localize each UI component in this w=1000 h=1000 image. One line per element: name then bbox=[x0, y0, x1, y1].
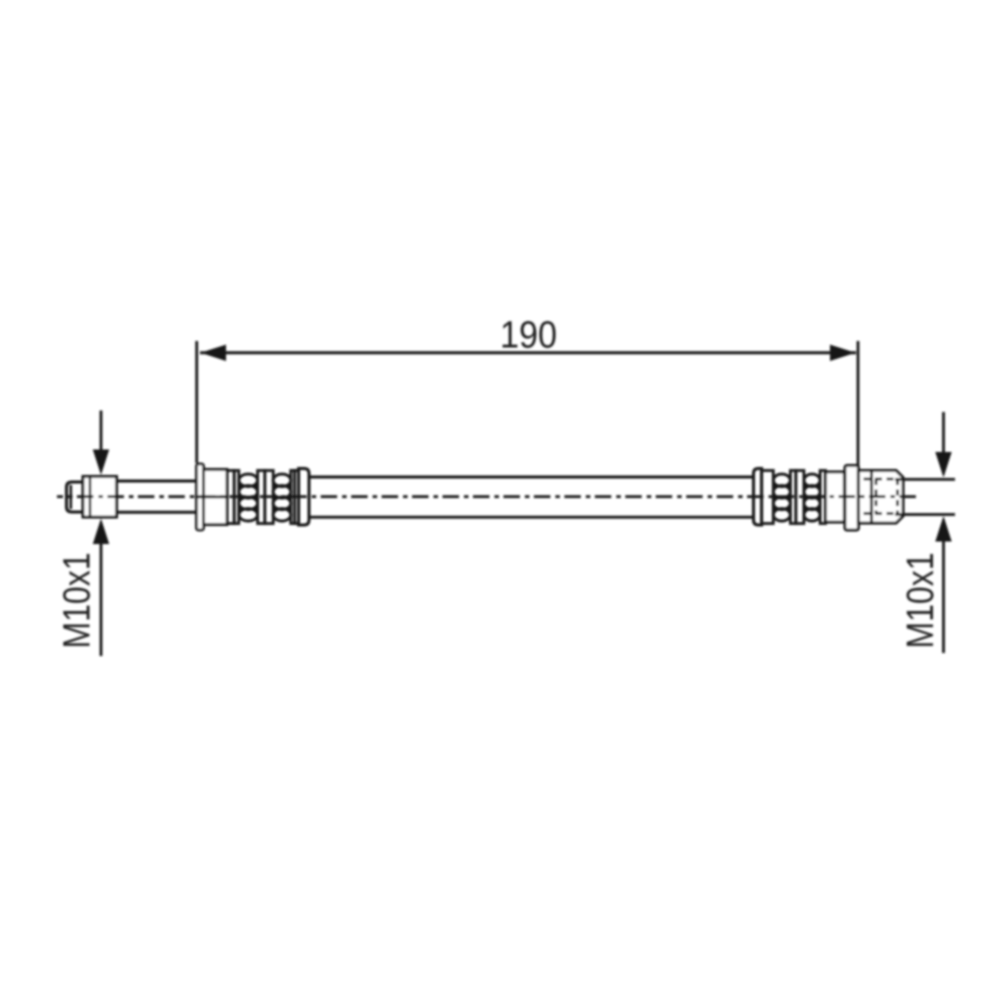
svg-text:M10x1: M10x1 bbox=[900, 553, 942, 649]
svg-text:190: 190 bbox=[500, 315, 557, 357]
svg-text:M10x1: M10x1 bbox=[57, 553, 99, 649]
